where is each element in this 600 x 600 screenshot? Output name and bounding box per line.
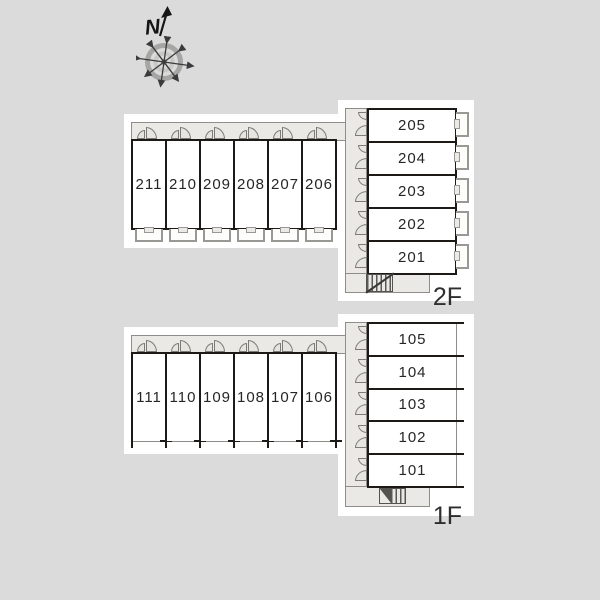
balcony bbox=[456, 178, 469, 203]
balcony-window-icon bbox=[280, 227, 290, 233]
room: 211 bbox=[133, 141, 167, 228]
room-number: 211 bbox=[136, 176, 163, 193]
room-number: 104 bbox=[398, 364, 426, 381]
room-number: 209 bbox=[203, 176, 231, 193]
room-number: 110 bbox=[170, 389, 197, 406]
balcony bbox=[169, 229, 197, 242]
room-row-1f: 111 110 109 108 107 106 bbox=[131, 352, 337, 442]
room: 204 bbox=[369, 143, 455, 176]
room: 104 bbox=[369, 357, 456, 390]
room-row-2f: 211 210 209 208 207 bbox=[131, 139, 337, 230]
room-number: 102 bbox=[398, 429, 426, 446]
balcony-window-icon bbox=[212, 227, 222, 233]
room: 107 bbox=[269, 354, 303, 441]
room-number: 105 bbox=[398, 331, 426, 348]
balcony bbox=[456, 211, 469, 236]
room: 205 bbox=[369, 110, 455, 143]
balcony bbox=[456, 112, 469, 137]
room-number: 109 bbox=[203, 389, 231, 406]
room: 103 bbox=[369, 390, 456, 423]
room: 102 bbox=[369, 422, 456, 455]
room-column-1f: 105 104 103 102 101 bbox=[367, 322, 457, 488]
balcony-window-icon bbox=[314, 227, 324, 233]
compass: N bbox=[136, 4, 196, 92]
room: 206 bbox=[303, 141, 335, 228]
balcony-window-icon bbox=[144, 227, 154, 233]
room-number: 202 bbox=[398, 216, 426, 233]
room-column-2f: 205 204 203 202 201 bbox=[367, 108, 457, 275]
room: 207 bbox=[269, 141, 303, 228]
room: 210 bbox=[167, 141, 201, 228]
floor-label-1f: 1F bbox=[420, 502, 462, 531]
room: 108 bbox=[235, 354, 269, 441]
room-number: 101 bbox=[398, 462, 426, 479]
room: 109 bbox=[201, 354, 235, 441]
balcony-window-icon bbox=[454, 185, 460, 194]
room: 209 bbox=[201, 141, 235, 228]
room-number: 111 bbox=[136, 389, 162, 406]
room-number: 203 bbox=[398, 183, 426, 200]
room: 105 bbox=[369, 324, 456, 357]
balcony-window-icon bbox=[178, 227, 188, 233]
room-number: 204 bbox=[398, 150, 426, 167]
balcony bbox=[237, 229, 265, 242]
room: 203 bbox=[369, 176, 455, 209]
balcony bbox=[456, 145, 469, 170]
room-number: 103 bbox=[398, 396, 426, 413]
balcony-window-icon bbox=[454, 218, 460, 227]
room-number: 205 bbox=[398, 117, 426, 134]
staircase bbox=[379, 488, 406, 504]
stair-ramp-icon bbox=[380, 489, 391, 503]
room: 101 bbox=[369, 455, 456, 486]
room: 111 bbox=[133, 354, 167, 441]
balcony bbox=[271, 229, 299, 242]
room-number: 207 bbox=[271, 176, 299, 193]
balcony-window-icon bbox=[454, 152, 460, 161]
room: 201 bbox=[369, 242, 455, 273]
balcony bbox=[305, 229, 333, 242]
north-label: N bbox=[144, 15, 162, 40]
room: 202 bbox=[369, 209, 455, 242]
room: 208 bbox=[235, 141, 269, 228]
room-number: 206 bbox=[305, 176, 333, 193]
staircase bbox=[366, 274, 393, 292]
room-number: 107 bbox=[271, 389, 299, 406]
floor-label-2f: 2F bbox=[420, 283, 462, 312]
balcony-window-icon bbox=[454, 251, 460, 260]
room-number: 201 bbox=[398, 249, 426, 266]
room: 106 bbox=[303, 354, 335, 441]
balcony bbox=[135, 229, 163, 242]
room: 110 bbox=[167, 354, 201, 441]
balcony-window-icon bbox=[246, 227, 256, 233]
room-number: 108 bbox=[237, 389, 265, 406]
balcony bbox=[203, 229, 231, 242]
floor-plan-canvas: N 211 210 209 bbox=[0, 0, 600, 600]
balcony-window-icon bbox=[454, 119, 460, 128]
stair-treads-icon bbox=[391, 489, 405, 503]
balcony bbox=[456, 244, 469, 269]
room-number: 210 bbox=[169, 176, 197, 193]
room-number: 208 bbox=[237, 176, 265, 193]
room-number: 106 bbox=[305, 389, 333, 406]
